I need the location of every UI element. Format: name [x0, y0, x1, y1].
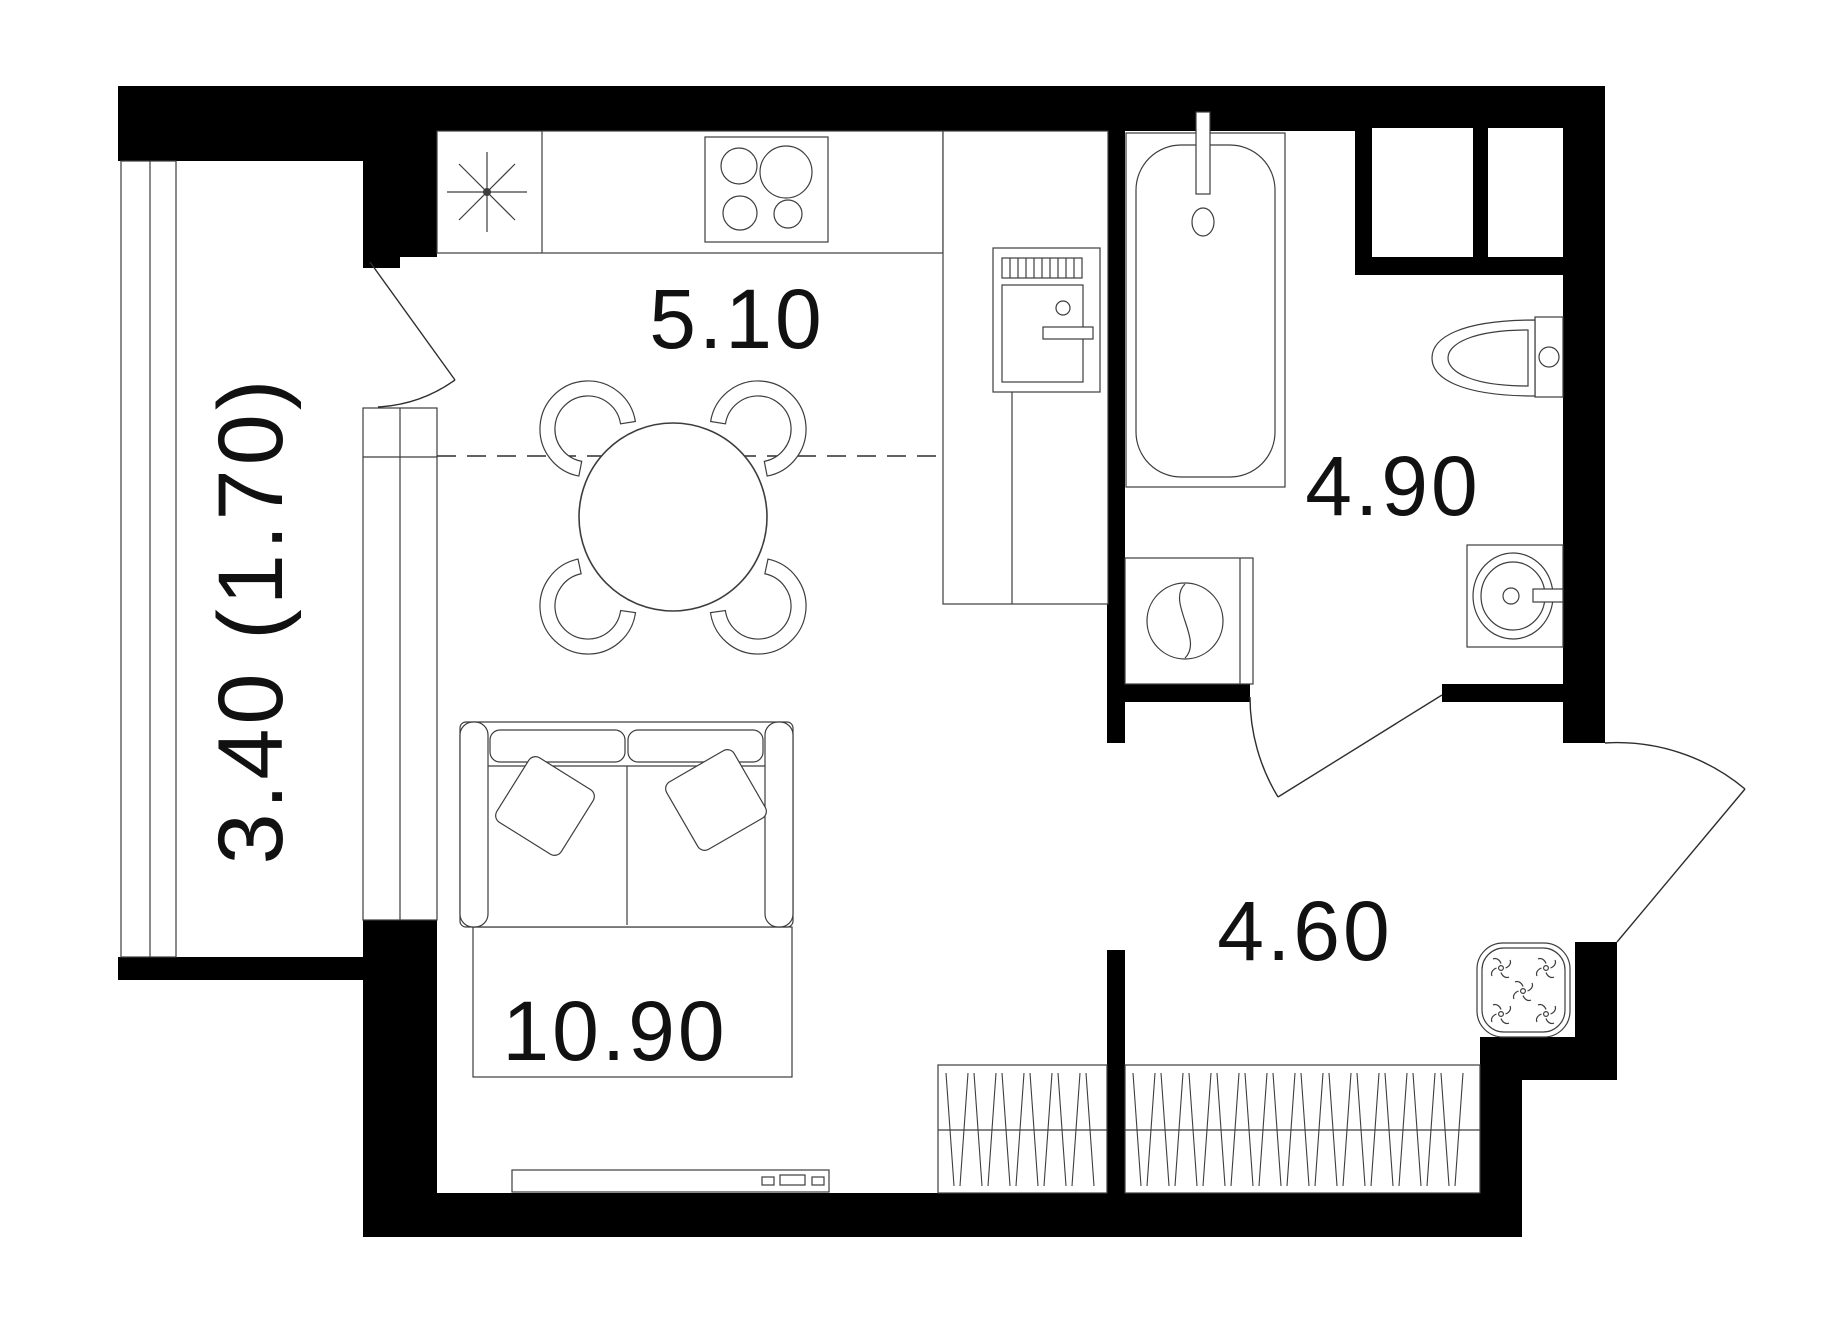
wall-segment	[363, 86, 437, 257]
sofa-back-cushion	[628, 730, 763, 762]
pouf	[1477, 943, 1570, 1037]
wall-segment	[118, 957, 363, 980]
sofa-armrest	[460, 722, 488, 927]
bathtub-icon	[1126, 112, 1285, 487]
sofa-armrest	[765, 722, 793, 927]
area-label-balcony: 3.40 (1.70)	[200, 376, 302, 865]
wall-segment	[1480, 1037, 1617, 1080]
balcony	[121, 161, 176, 957]
door-leaf	[1278, 695, 1442, 797]
wardrobe-living	[938, 1065, 1107, 1193]
area-label-hallway: 4.60	[1217, 884, 1393, 978]
wall-segment	[363, 257, 400, 268]
bathtub-faucet	[1196, 112, 1210, 194]
sink-faucet	[1533, 589, 1563, 602]
wall-segment	[1563, 86, 1605, 743]
shaft-niche	[1488, 128, 1563, 257]
wall-segment	[363, 86, 1605, 131]
refrigerator-icon	[993, 248, 1100, 392]
door-leaf	[370, 262, 455, 380]
toilet-icon	[1432, 317, 1563, 397]
door-arc	[1605, 743, 1745, 789]
area-label-kitchen: 5.10	[649, 272, 825, 366]
tv-console	[512, 1170, 829, 1192]
floor-plan-canvas: 5.10 4.90 4.60 10.90 3.40 (1.70)	[0, 0, 1845, 1323]
bathroom-door	[1250, 695, 1442, 797]
walls	[118, 86, 1617, 1237]
shaft-niche	[1372, 128, 1473, 257]
washing-machine-icon	[1125, 558, 1253, 684]
wall-segment	[363, 1193, 1522, 1237]
wall-segment	[1442, 684, 1563, 702]
door-arc	[378, 380, 455, 407]
door-leaf	[1617, 789, 1745, 942]
wardrobe-hall	[1125, 1065, 1480, 1193]
area-label-bathroom: 4.90	[1305, 439, 1481, 533]
wall-segment	[1480, 1080, 1522, 1193]
kitchen-sink-icon	[447, 152, 527, 232]
wall-segment	[1107, 131, 1125, 743]
wall-segment	[118, 86, 363, 161]
dining-table	[579, 423, 767, 611]
sofa-back-cushion	[490, 730, 625, 762]
balcony-window	[363, 408, 437, 920]
stove-icon	[705, 137, 828, 242]
area-label-living: 10.90	[502, 984, 727, 1078]
balcony-railing	[121, 161, 176, 957]
balcony-door	[370, 262, 455, 407]
wall-segment	[1107, 950, 1125, 1193]
door-arc	[1250, 697, 1278, 797]
floor-plan: 5.10 4.90 4.60 10.90 3.40 (1.70)	[0, 0, 1845, 1323]
entrance-door	[1605, 743, 1745, 942]
bathroom-sink-icon	[1467, 545, 1563, 647]
sofa	[460, 722, 793, 927]
wall-segment	[363, 920, 437, 1193]
wall-segment	[1125, 684, 1250, 702]
living-furniture	[460, 722, 829, 1192]
hallway	[1477, 943, 1570, 1037]
kitchen	[437, 131, 1108, 604]
dining-set	[520, 361, 826, 674]
